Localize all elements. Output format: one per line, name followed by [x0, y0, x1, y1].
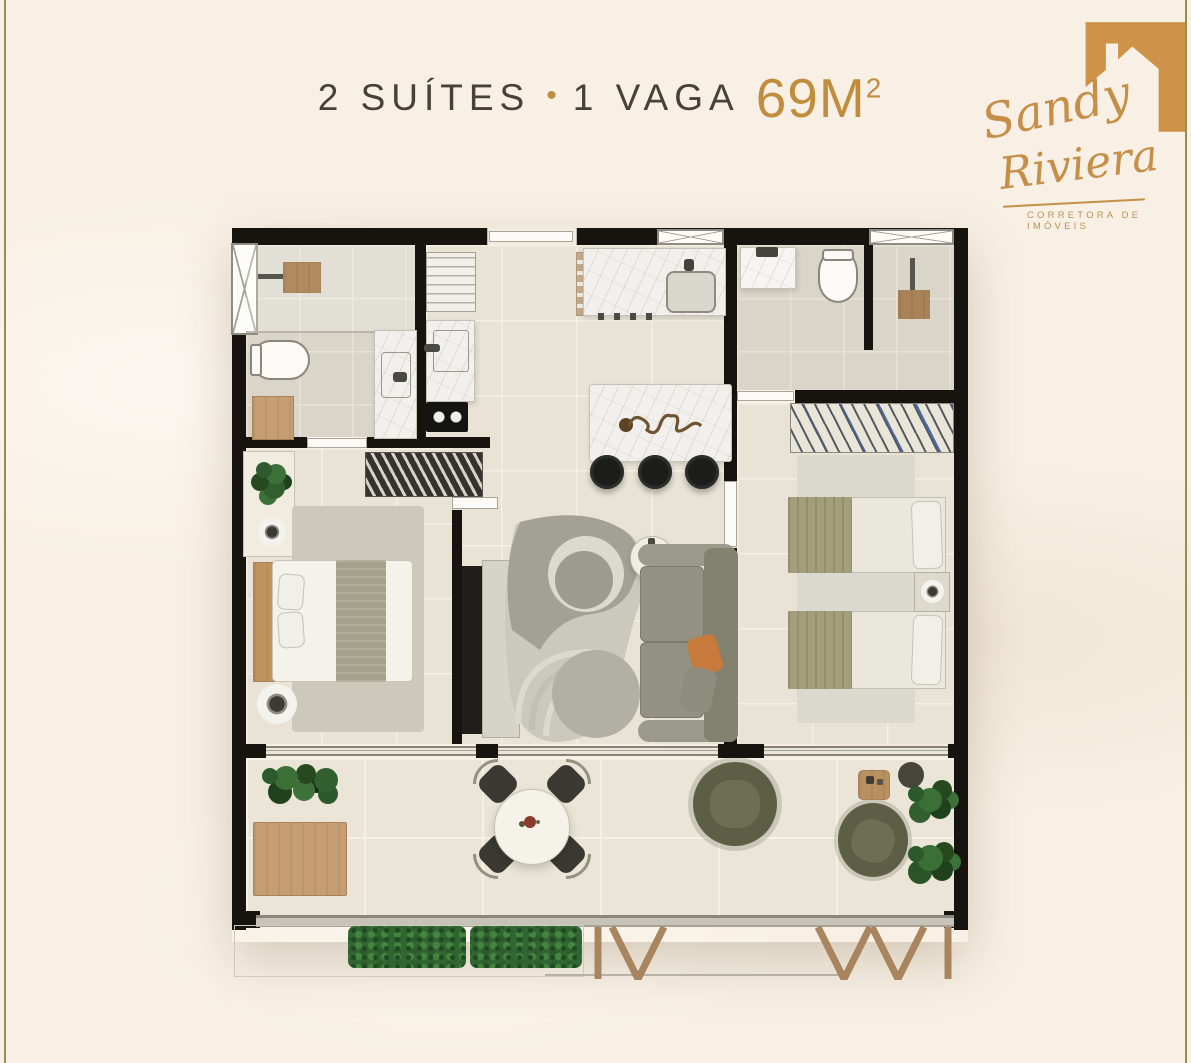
tv-panel: [462, 566, 482, 734]
title-separator-dot: •: [546, 79, 557, 113]
pergola-brace-group-1: [592, 926, 672, 980]
wall-right: [954, 228, 968, 930]
island-decor-squiggle: [615, 400, 715, 445]
single-bed-1-blanket: [788, 497, 852, 573]
planter-hedge-1: [348, 926, 466, 968]
balcony-plant-left: [262, 768, 278, 784]
laundry-faucet: [424, 344, 440, 352]
single-bed-2-blanket: [788, 611, 852, 689]
door-suite2-bathroom: [737, 391, 794, 401]
lamp-suite1-desk: [258, 518, 286, 546]
balcony-plant-right-1: [908, 786, 924, 802]
wall-balcony-seg2: [476, 744, 498, 758]
brand-tagline: CORRETORA DE IMÓVEIS: [1027, 210, 1187, 232]
shower2-arm: [910, 258, 915, 292]
sliding-door-living: [498, 746, 718, 756]
title-suites: 2 SUÍTES: [318, 77, 531, 119]
balcony-plant-right-2: [908, 846, 924, 862]
double-bed-pillow-2: [277, 611, 305, 649]
sliding-door-suite2: [764, 746, 948, 756]
wall-balcony-seg4: [948, 744, 968, 758]
wall-bath2-bottom: [795, 390, 954, 403]
cabinet-suite1-bathroom: [252, 396, 294, 440]
kitchen-faucet: [684, 259, 694, 271]
planter-hedge-2: [470, 926, 582, 968]
sliding-door-suite1: [266, 746, 476, 756]
balcony-bench: [253, 822, 347, 896]
pergola-brace-group-2: [812, 926, 954, 980]
kitchen-sink: [666, 271, 716, 313]
title-vaga: 1 VAGA: [573, 77, 740, 119]
window-suite2-bathroom: [869, 229, 954, 245]
pergola-baseline: [545, 974, 847, 976]
entry-door: [489, 231, 573, 242]
area-superscript: 2: [866, 73, 883, 104]
door-suite2: [724, 481, 737, 547]
cooktop: [426, 402, 468, 432]
double-bed-pillow-1: [277, 573, 305, 611]
faucet-suite1: [393, 372, 407, 382]
washer: [426, 252, 476, 312]
bar-stool-1: [590, 455, 624, 489]
toilet-suite1-tank: [250, 344, 262, 376]
faucet-suite2: [756, 247, 778, 257]
page: 2 SUÍTES • 1 VAGA 69M2 Sandy Riviera COR…: [0, 0, 1191, 1063]
lamp-suite2: [921, 580, 944, 603]
wall-media: [452, 510, 462, 744]
dining-table-centerpiece: [524, 816, 536, 828]
left-border-line: [4, 0, 6, 1063]
window-kitchen: [657, 229, 724, 245]
single-bed-2-pillow: [911, 614, 943, 685]
brand-logo: Sandy Riviera CORRETORA DE IMÓVEIS: [975, 14, 1190, 224]
double-bed-throw: [336, 560, 386, 682]
shower1-head: [283, 262, 321, 293]
plan-title: 2 SUÍTES • 1 VAGA 69M2: [340, 66, 860, 130]
brand-underline: [1003, 198, 1145, 207]
wall-shower2-partition: [864, 240, 873, 350]
shower2-head: [898, 290, 930, 319]
balcony-side-table-decor: [866, 776, 874, 784]
lounge-chair-1-cushion: [710, 780, 760, 828]
title-area: 69M2: [756, 66, 883, 130]
wall-top: [232, 228, 968, 245]
area-value: 69M: [756, 67, 866, 129]
shower1-area: [246, 245, 415, 333]
toilet-suite2-tank: [822, 249, 854, 261]
lamp-suite1-bedside: [257, 684, 297, 724]
balcony-side-table: [858, 770, 890, 800]
balcony-stool: [898, 762, 924, 788]
bar-stool-2: [638, 455, 672, 489]
kitchen-counter-knobs: [598, 313, 652, 320]
wall-balcony-seg3: [718, 744, 764, 758]
sofa-cushion-1: [640, 566, 704, 642]
plant-suite1-desk: [256, 462, 272, 478]
wardrobe-suite2: [790, 403, 954, 453]
single-bed-1-pillow: [911, 500, 943, 569]
door-suite1-bathroom: [307, 438, 367, 448]
wardrobe-suite1: [365, 452, 483, 497]
door-suite1: [452, 497, 498, 509]
shower1-arm: [258, 274, 284, 279]
bar-stool-3: [685, 455, 719, 489]
wall-balcony-seg1: [232, 744, 266, 758]
